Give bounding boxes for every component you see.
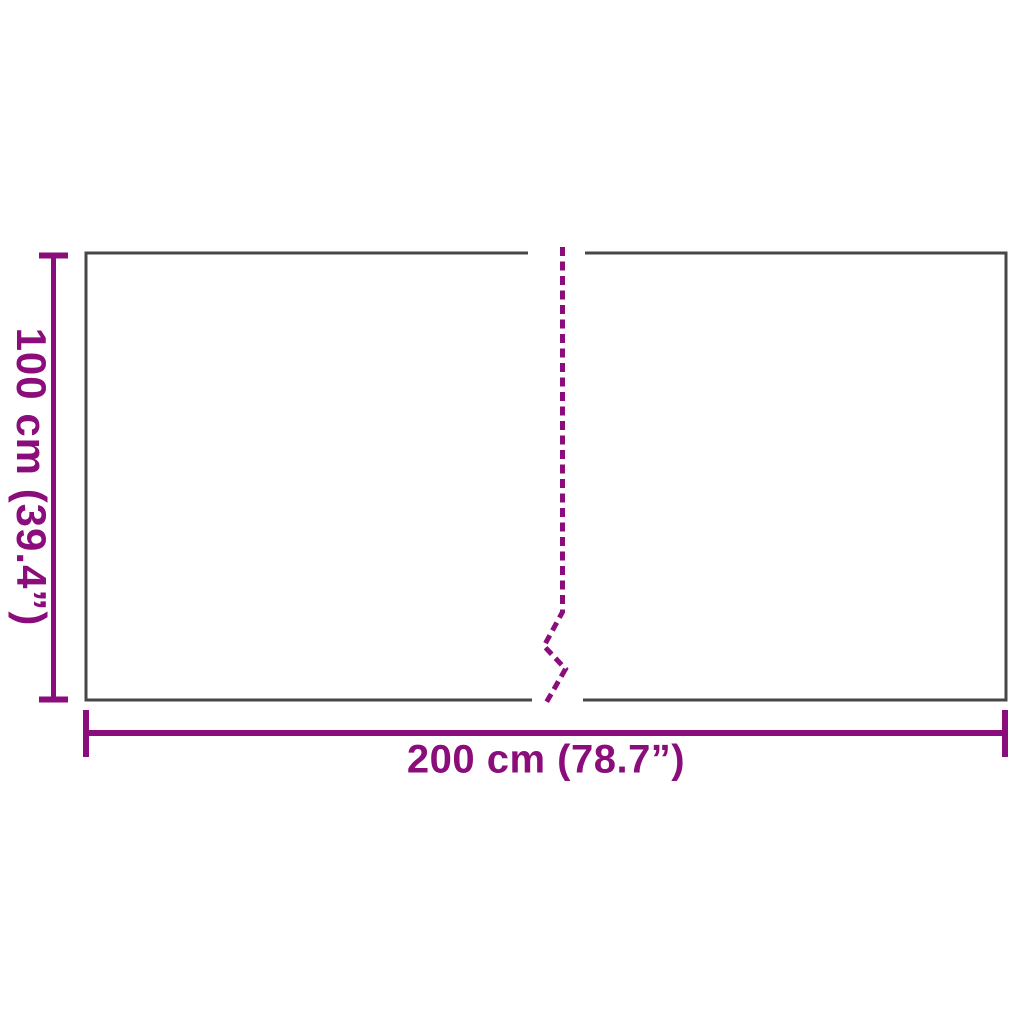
seam-dashed-line	[544, 247, 566, 703]
width-dimension-label: 200 cm (78.7”)	[407, 738, 685, 783]
height-dimension-label: 100 cm (39.4”)	[7, 328, 55, 627]
dimension-diagram: 100 cm (39.4”) 200 cm (78.7”)	[0, 0, 1024, 1024]
panel-outline-right	[583, 253, 1006, 700]
diagram-artwork	[0, 0, 1024, 1024]
panel-outline-left	[86, 253, 532, 700]
